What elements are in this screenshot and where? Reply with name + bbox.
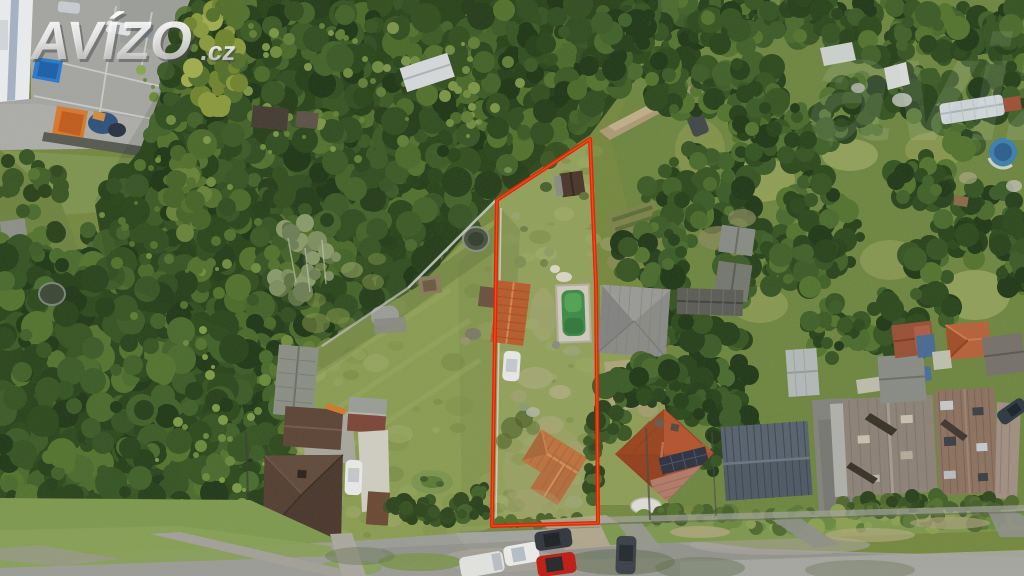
svg-text:.cz: .cz [198, 36, 238, 66]
svg-text:AVÍZO: AVÍZO [26, 10, 198, 71]
svg-text:avizo: avizo [810, 4, 1024, 172]
